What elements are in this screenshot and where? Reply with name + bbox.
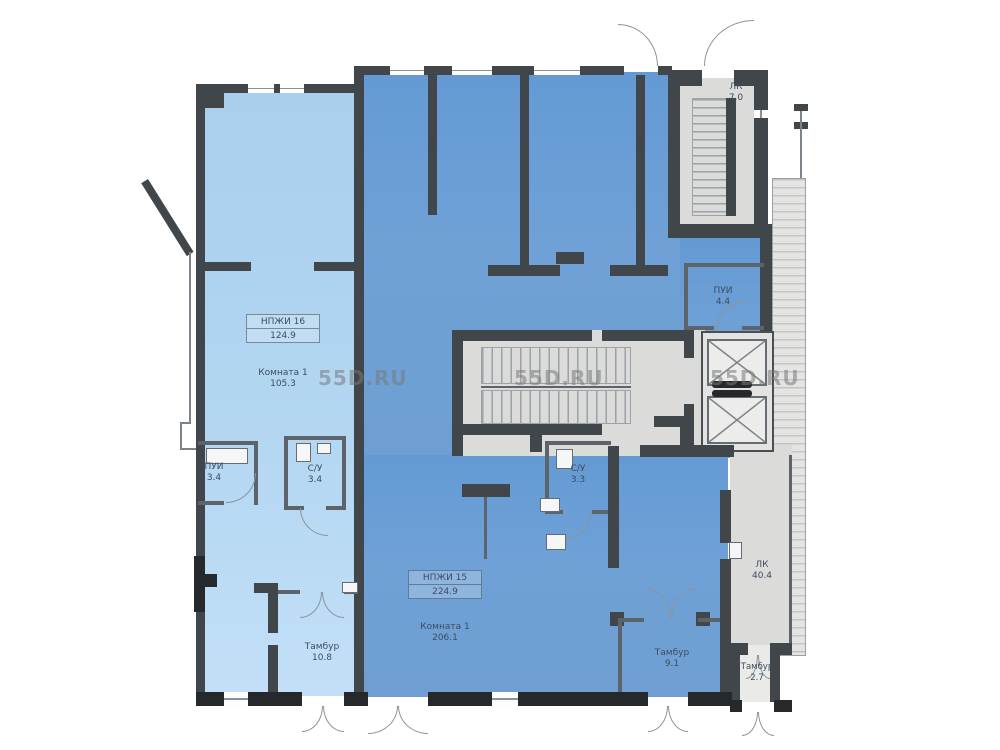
wall [608,446,619,568]
wall [668,70,680,236]
window [492,692,518,706]
neighbor-wall-tick [794,104,808,111]
room-label-pui-left: ПУИ 3.4 [190,462,238,485]
window [248,84,274,93]
partition [620,618,644,622]
unit-code: НПЖИ 16 [247,315,319,329]
partition [698,618,722,622]
room-name: Тамбур [732,662,782,673]
watermark: 55D.RU [318,366,408,390]
wall [205,262,251,271]
unit15-room-label: Комната 1 206.1 [400,622,490,645]
room-name: ЛК [738,560,786,571]
wall [720,490,731,543]
unit-total-area: 124.9 [247,329,319,342]
wall [726,98,736,216]
room-area: 9.1 [646,659,698,670]
wall [530,435,542,452]
partition [198,441,258,445]
room-name: С/У [295,464,335,475]
wall [774,700,792,712]
room-name: Комната 1 [400,622,490,633]
elevator-door [712,390,752,397]
room-label-pui-right: ПУИ 4.4 [700,286,746,309]
door-arc [704,20,754,66]
unit16-area-box: НПЖИ 16 124.9 [246,314,320,343]
door-leaf [729,542,742,559]
wall [730,700,742,712]
site-outline [189,252,191,424]
wall [248,692,302,706]
door-arc [758,712,774,736]
wall [268,645,278,695]
stairs [481,390,631,424]
wall [580,66,624,75]
door-arc [668,706,688,732]
partition [284,436,346,440]
sink-fixture [317,443,331,454]
wall [728,643,748,655]
pier-cap [610,265,668,276]
column [204,574,217,587]
room-label-su-center: С/У 3.3 [558,464,598,487]
watermark: 55D.RU [514,366,604,390]
wall [452,330,463,456]
room-area: 40.4 [738,571,786,582]
toilet-fixture [296,443,311,462]
wall [602,330,684,341]
room-name: Комната 1 [238,368,328,379]
room-name: Тамбур [296,642,348,653]
partition [284,436,288,510]
door-closer [342,582,358,593]
wall [344,692,368,706]
wall [424,66,452,75]
partition [789,455,792,651]
unit15-area-box: НПЖИ 15 224.9 [408,570,482,599]
door-arc [742,712,758,736]
wall [196,692,224,706]
partition [618,618,622,695]
window [280,84,304,93]
unit-code: НПЖИ 15 [409,571,481,585]
room-name: ЛК [712,82,760,93]
site-outline [180,422,182,450]
wall [640,445,734,457]
site-outline [180,448,197,450]
window [452,66,492,75]
partition [684,263,688,330]
unit16-room-label: Комната 1 105.3 [238,368,328,391]
fixture [546,534,566,550]
room-name: С/У [558,464,598,475]
wall [492,66,534,75]
room-area: 3.4 [295,475,335,486]
room-area: 4.4 [700,297,746,308]
room-area: 3.4 [190,473,238,484]
room-area: 7.0 [712,93,760,104]
room-label-tambur-center: Тамбур 9.1 [646,648,698,671]
room-area: 206.1 [400,633,490,644]
room-area: 2.7 [732,673,782,684]
door-arc [398,706,428,734]
elevator-cross-icon [707,396,767,444]
window [534,66,580,75]
partition [342,436,346,510]
pier [428,75,437,215]
wall [452,424,602,435]
room-name: Тамбур [646,648,698,659]
room-area: 105.3 [238,379,328,390]
pier-cap [488,265,560,276]
window [754,110,768,118]
partition [326,506,346,510]
window [224,692,248,706]
door-arc [302,706,323,732]
stairs [692,98,728,216]
room-label-su-left: С/У 3.4 [295,464,335,487]
room-label-lk-right: ЛК 40.4 [738,560,786,583]
wall [428,692,492,706]
wall [314,262,362,271]
floor-plan: ЛК 7.0 ПУИ 4.4 ПУИ [0,0,1000,750]
wall [222,84,248,93]
room-name: ПУИ [190,462,238,473]
window [390,66,424,75]
wall [196,84,224,108]
partition [742,326,764,330]
wall [688,692,732,706]
watermark: 55D.RU [710,366,800,390]
unit-total-area: 224.9 [409,585,481,598]
wall [770,643,792,655]
wall [754,118,768,232]
wall [684,330,694,358]
partition [684,263,764,267]
room-area: 3.3 [558,475,598,486]
door-arc [648,706,668,732]
partition [198,501,224,505]
wall [760,232,772,334]
pier-cap [462,484,510,497]
wall [518,692,648,706]
wall [141,179,193,256]
room-name: ПУИ [700,286,746,297]
door-arc [618,24,658,66]
wall [452,330,592,341]
room-area: 10.8 [296,653,348,664]
pier [636,75,645,267]
door-arc [368,706,398,734]
pier [520,75,529,267]
wall [354,66,390,75]
neighbor-wall-line [800,111,802,178]
room-label-lk-top: ЛК 7.0 [712,82,760,105]
room-label-tambur-right: Тамбур 2.7 [732,662,782,683]
fixture [540,498,560,512]
partition [545,441,611,445]
door-arc [323,706,344,732]
room-label-tambur-left: Тамбур 10.8 [296,642,348,665]
wall [668,224,772,238]
wall [268,583,278,633]
pier [556,252,584,264]
partition [278,590,300,594]
partition [484,497,487,559]
